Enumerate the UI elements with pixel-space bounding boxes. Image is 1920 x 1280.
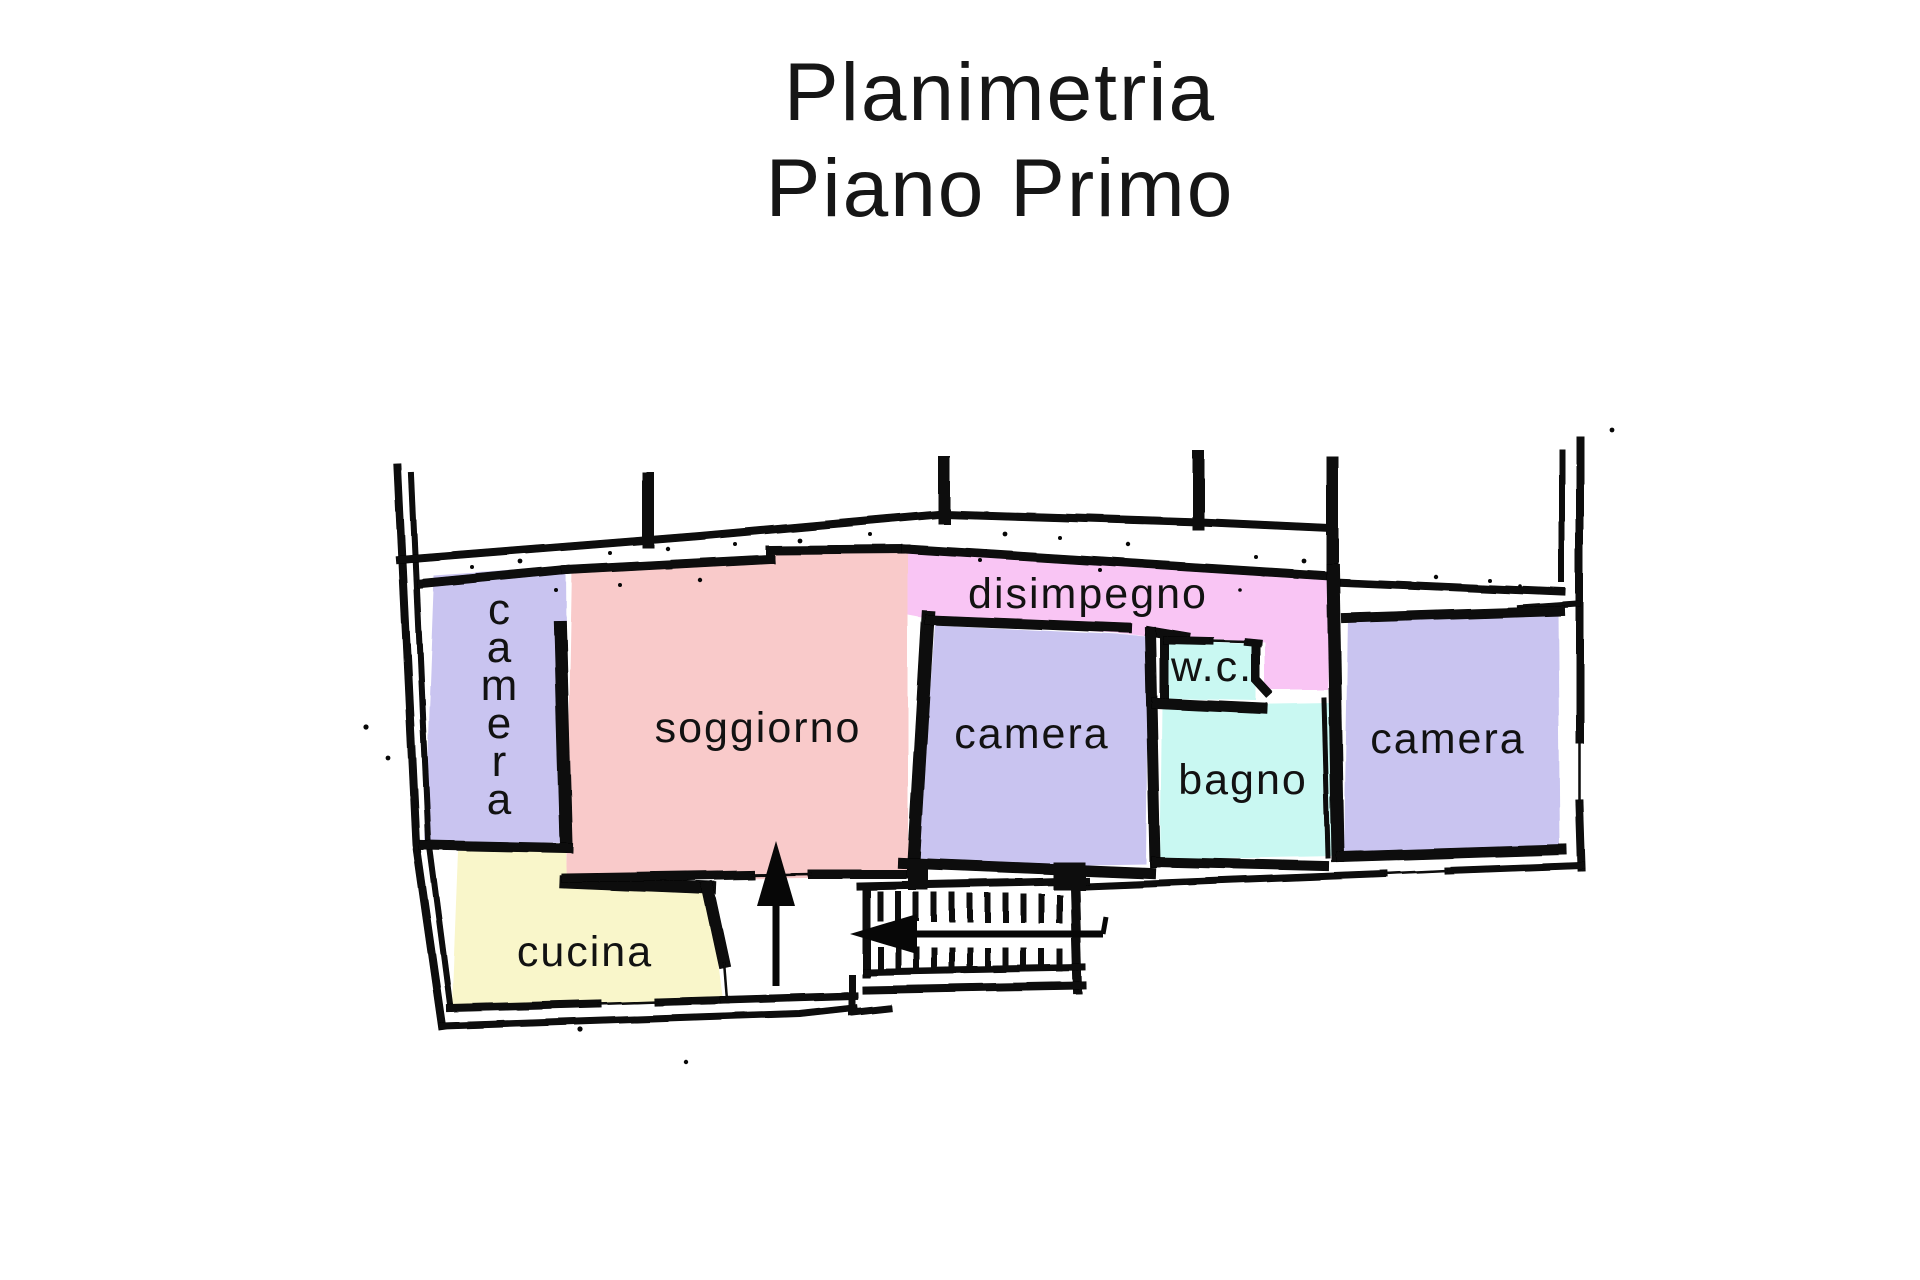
wall-landing-bottom bbox=[724, 996, 854, 1000]
room-label-wc: w.c. bbox=[1170, 643, 1253, 691]
wall-bagno-bottom bbox=[1156, 862, 1324, 866]
page-title-line1: Planimetria bbox=[784, 47, 1216, 138]
wall-stairs-top bbox=[860, 881, 1085, 886]
page-title-line2: Piano Primo bbox=[766, 143, 1235, 234]
door-cucina bbox=[724, 962, 727, 1000]
wall-camera-right-bottom bbox=[1342, 850, 1562, 857]
wall-camera-left-right bbox=[560, 627, 566, 844]
wall-soggiorno-bottom-left bbox=[566, 882, 710, 888]
room-label-disimpegno: disimpegno bbox=[968, 570, 1208, 618]
wall-wc-top bbox=[1167, 640, 1210, 641]
wall-bottom-left-outer bbox=[442, 1008, 854, 1026]
room-label-soggiorno: soggiorno bbox=[655, 704, 862, 752]
room-label-cucina: cucina bbox=[517, 928, 653, 976]
floor-plan-drawing: Planimetria Piano Primo bbox=[0, 0, 1920, 1280]
wall-bottom-right-outer bbox=[1085, 866, 1582, 886]
window-bottom-right bbox=[1385, 871, 1448, 874]
wall-stairs-bottom-outer bbox=[866, 986, 1083, 990]
room-label-camera-right: camera bbox=[1370, 715, 1525, 763]
wall-pier-2 bbox=[1053, 862, 1085, 890]
wall-camera-center-right bbox=[1150, 632, 1155, 862]
door-wc bbox=[1210, 641, 1248, 642]
room-label-bagno: bagno bbox=[1178, 756, 1308, 804]
wall-camera-right-top bbox=[1346, 611, 1560, 618]
wall-soggiorno-bottom bbox=[566, 874, 908, 878]
wall-wc-bottom bbox=[1157, 703, 1262, 708]
wall-terrace-bottom bbox=[1334, 582, 1562, 592]
wall-stairs-right bbox=[1075, 888, 1078, 990]
wall-pier-1 bbox=[908, 866, 928, 890]
wall-disimpegno-right bbox=[1333, 570, 1338, 856]
room-label-camera-center: camera bbox=[954, 710, 1109, 758]
left-arrow-icon bbox=[850, 914, 1106, 954]
floor-plan-page: Planimetria Piano Primo bbox=[0, 0, 1920, 1280]
wall-camera-left-bottom bbox=[424, 845, 568, 848]
